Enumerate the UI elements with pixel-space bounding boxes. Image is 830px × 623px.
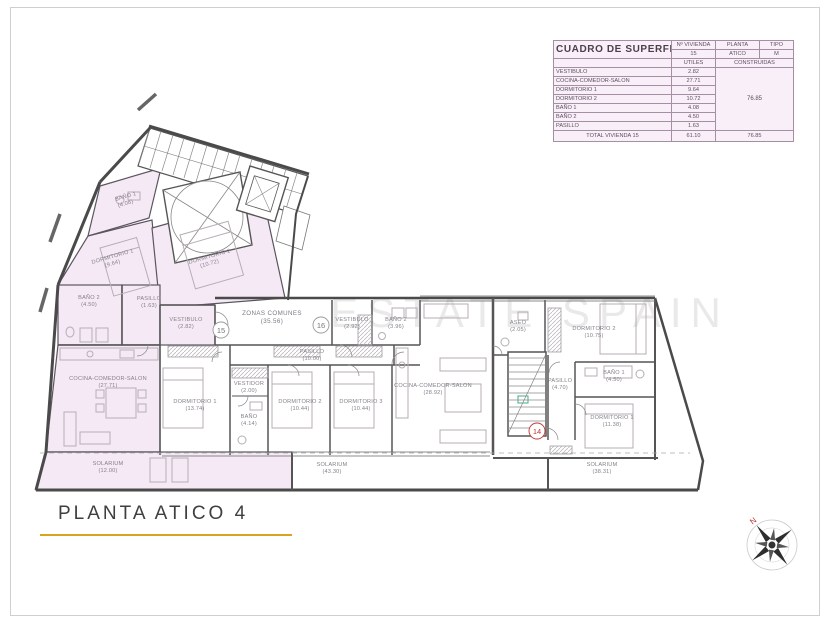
total-label: TOTAL VIVIENDA 15 xyxy=(554,131,672,142)
title-underline xyxy=(40,534,292,536)
table-total-row: TOTAL VIVIENDA 15 61.10 76.85 xyxy=(554,131,794,142)
label-bano2-16: BAÑO 2 xyxy=(385,316,407,323)
label-vestibulo-15: VESTIBULO xyxy=(169,317,203,323)
tipo-value: M xyxy=(760,50,794,59)
svg-text:(11.38): (11.38) xyxy=(603,422,622,428)
apartment-15-region xyxy=(36,168,292,490)
total-utiles: 61.10 xyxy=(672,131,716,142)
label-dorm1-16: DORMITORIO 1 xyxy=(173,399,216,405)
construidas-header: CONSTRUIDAS xyxy=(716,59,794,68)
vivienda-number: 15 xyxy=(672,50,716,59)
construidas-total: 76.85 xyxy=(716,68,794,131)
svg-text:(2.82): (2.82) xyxy=(178,324,194,330)
col-planta-label: PLANTA xyxy=(716,41,760,50)
svg-text:(10.75): (10.75) xyxy=(584,333,603,339)
svg-text:(38.31): (38.31) xyxy=(592,469,611,475)
label-cocina-15: COCINA-COMEDOR-SALON xyxy=(69,376,147,382)
svg-text:(12.00): (12.00) xyxy=(98,468,117,474)
svg-text:(2.92): (2.92) xyxy=(344,324,360,330)
floor-plan-page: { "title": { "text": "PLANTA ATICO 4" },… xyxy=(0,0,830,623)
label-dorm3-16: DORMITORIO 3 xyxy=(339,399,382,405)
utiles-header: UTILES xyxy=(672,59,716,68)
label-cocina-16: COCINA-COMEDOR-SALON xyxy=(394,383,472,389)
label-aseo-14: ASEO xyxy=(510,320,527,326)
svg-text:(4.50): (4.50) xyxy=(81,302,97,308)
label-dorm2-14: DORMITORIO 2 xyxy=(572,326,615,332)
svg-text:16: 16 xyxy=(317,321,325,330)
svg-text:(2.00): (2.00) xyxy=(241,388,257,394)
label-bano-16: BAÑO xyxy=(241,413,258,420)
svg-text:(28.92): (28.92) xyxy=(423,390,442,396)
page-title: PLANTA ATICO 4 xyxy=(58,503,248,525)
svg-text:14: 14 xyxy=(533,427,541,436)
svg-text:15: 15 xyxy=(217,326,225,335)
label-pasillo-16: PASILLO xyxy=(300,349,325,355)
label-solarium-16: SOLARIUM xyxy=(317,462,348,468)
label-vestidor-16: VESTIDOR xyxy=(234,381,264,387)
label-dorm2-16: DORMITORIO 2 xyxy=(278,399,321,405)
unit-badge-14: 14 xyxy=(529,423,545,439)
label-pasillo-15: PASILLO xyxy=(137,296,162,302)
svg-text:(27.71): (27.71) xyxy=(98,383,117,389)
label-vestibulo-16: VESTIBULO xyxy=(335,317,369,323)
planta-value: ATICO xyxy=(716,50,760,59)
svg-text:(2.05): (2.05) xyxy=(510,327,526,333)
table-row: VESTIBULO2.82 76.85 xyxy=(554,68,794,77)
svg-text:(1.63): (1.63) xyxy=(141,303,157,309)
surface-table-title: CUADRO DE SUPERFICIES xyxy=(554,41,672,59)
unit-badge-15: 15 xyxy=(213,322,229,338)
col-tipo-label: TIPO xyxy=(760,41,794,50)
room-pasillo-15 xyxy=(122,285,160,345)
label-pasillo-14: PASILLO xyxy=(548,378,573,384)
svg-text:(4.14): (4.14) xyxy=(241,421,257,427)
label-bano2-15: BAÑO 2 xyxy=(78,294,100,301)
svg-text:(35.56): (35.56) xyxy=(261,318,283,325)
label-solarium-14: SOLARIUM xyxy=(587,462,618,468)
svg-text:(43.30): (43.30) xyxy=(322,469,341,475)
svg-text:(4.50): (4.50) xyxy=(606,377,622,383)
unit-badge-16: 16 xyxy=(313,317,329,333)
label-zonas-comunes: ZONAS COMUNES xyxy=(242,310,302,317)
svg-text:(13.74): (13.74) xyxy=(185,406,204,412)
svg-text:(4.70): (4.70) xyxy=(552,385,568,391)
svg-text:(10.44): (10.44) xyxy=(290,406,309,412)
total-construidas: 76.85 xyxy=(716,131,794,142)
col-vivienda-label: Nº VIVIENDA xyxy=(672,41,716,50)
compass-rose: N xyxy=(731,502,807,580)
svg-text:(3.96): (3.96) xyxy=(388,324,404,330)
svg-text:(10.00): (10.00) xyxy=(302,356,321,362)
label-solarium-15: SOLARIUM xyxy=(93,461,124,467)
surface-table: CUADRO DE SUPERFICIES Nº VIVIENDA PLANTA… xyxy=(553,40,794,142)
label-bano1-14: BAÑO 1 xyxy=(603,369,625,376)
label-dorm1-14: DORMITORIO 1 xyxy=(590,415,633,421)
svg-text:(10.44): (10.44) xyxy=(351,406,370,412)
